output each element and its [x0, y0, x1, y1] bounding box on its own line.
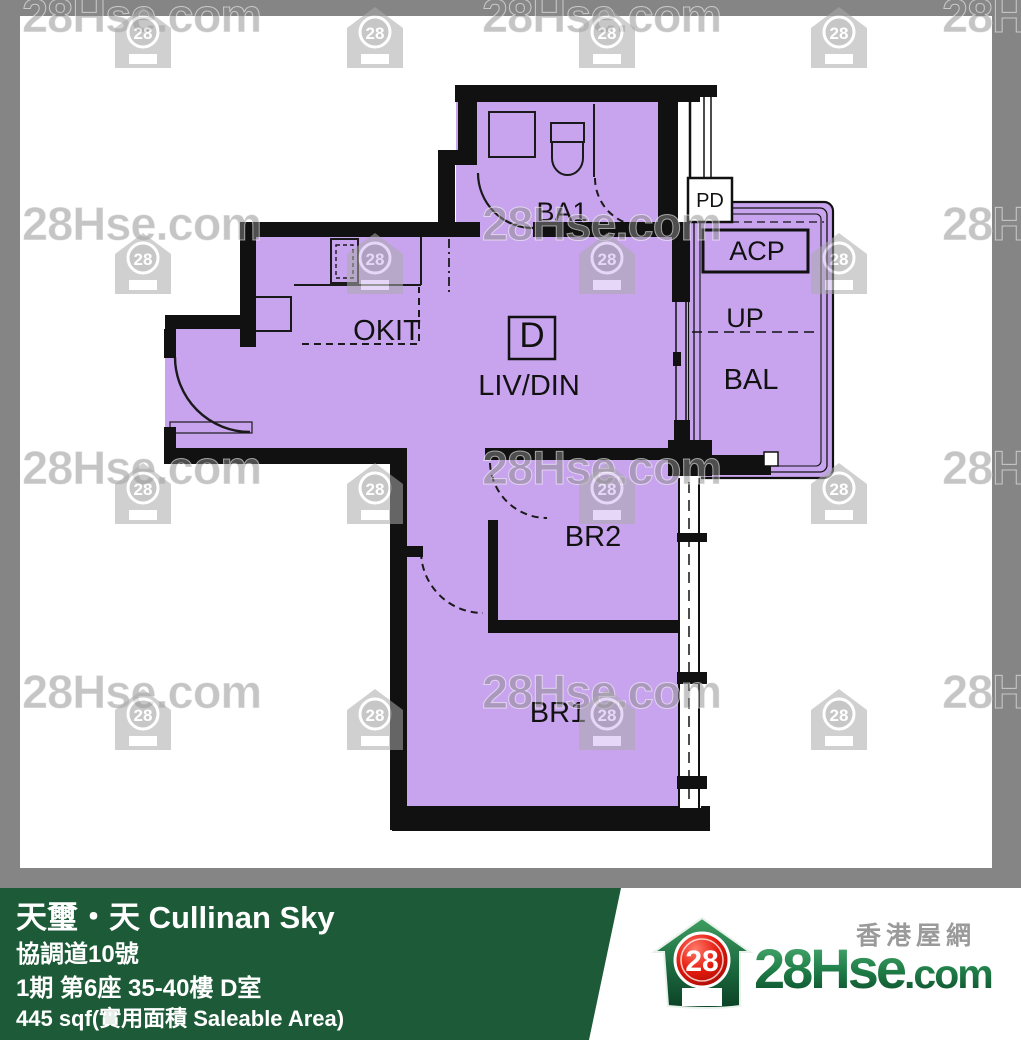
- unit-info: 1期 第6座 35-40樓 D室: [16, 968, 261, 1003]
- label-br1: BR1: [530, 697, 586, 729]
- label-unit: D: [519, 316, 544, 355]
- label-livdin: LIV/DIN: [478, 370, 580, 402]
- estate-name: 天璽・天 Cullinan Sky: [16, 892, 335, 937]
- estate-info-banner: 天璽・天 Cullinan Sky 協調道10號 1期 第6座 35-40樓 D…: [0, 888, 640, 1040]
- balcony-bottom-wall: [705, 455, 771, 475]
- label-pd: PD: [696, 190, 724, 212]
- estate-address: 協調道10號: [16, 934, 139, 969]
- floor-plan: BA1 PD ACP UP BAL OKIT D LIV/DIN BR2 BR1: [0, 0, 1021, 868]
- floorplan-screenshot: BA1 PD ACP UP BAL OKIT D LIV/DIN BR2 BR1…: [0, 0, 1021, 1040]
- balcony-door-handle: [673, 352, 681, 366]
- label-acp: ACP: [729, 236, 785, 266]
- house-logo-icon: 28: [650, 916, 754, 1010]
- label-bal: BAL: [724, 364, 779, 396]
- info-banner-section: 天璽・天 Cullinan Sky 協調道10號 1期 第6座 35-40樓 D…: [0, 888, 1021, 1040]
- site-logo: 香港屋網 28: [648, 914, 1020, 1034]
- label-up: UP: [726, 303, 764, 333]
- balcony-corner-post: [764, 452, 778, 466]
- logo-badge: 28: [685, 945, 718, 978]
- living-kitchen-fill: [245, 235, 688, 450]
- brand-suffix: .com: [904, 951, 992, 997]
- viewer-frame-band: [0, 868, 1021, 888]
- saleable-area: 445 sqf(實用面積 Saleable Area): [16, 1001, 344, 1033]
- label-okit: OKIT: [353, 315, 421, 347]
- brand-main: 28Hse: [754, 937, 904, 1000]
- label-ba1: BA1: [536, 197, 587, 227]
- brand-wordmark: 28Hse.com: [754, 936, 992, 1001]
- label-br2: BR2: [565, 521, 621, 553]
